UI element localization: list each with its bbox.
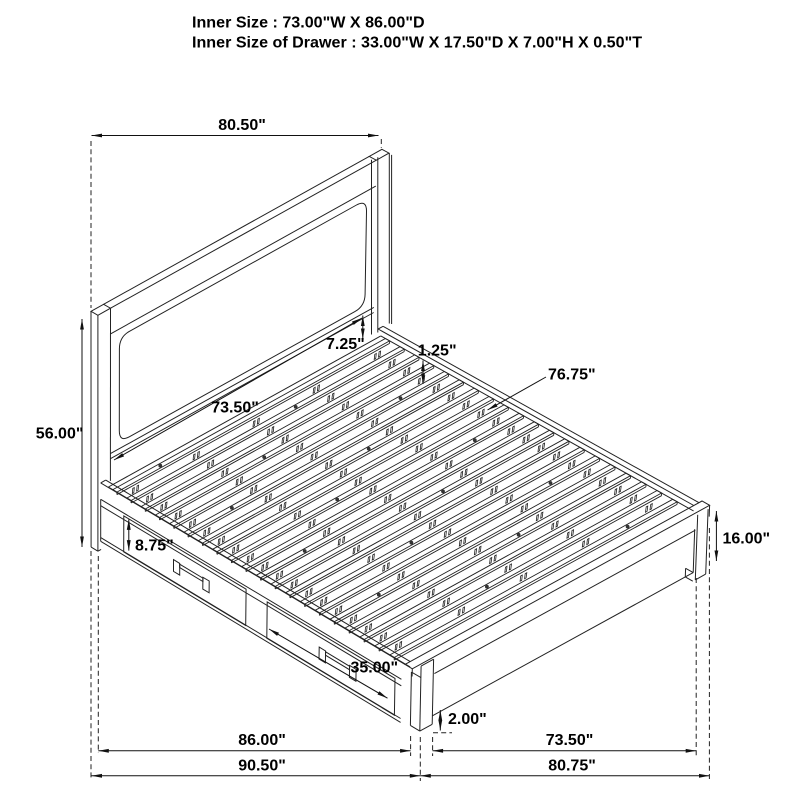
svg-text:73.50": 73.50" [546, 732, 594, 749]
svg-text:8.75": 8.75" [135, 538, 174, 555]
svg-text:2.00": 2.00" [448, 711, 487, 728]
svg-text:80.75": 80.75" [548, 758, 596, 775]
svg-text:7.25": 7.25" [326, 336, 365, 353]
svg-text:Inner Size : 73.00"W X 86.00"D: Inner Size : 73.00"W X 86.00"D [192, 14, 425, 32]
svg-text:56.00": 56.00" [36, 426, 84, 443]
svg-text:73.50": 73.50" [211, 400, 259, 417]
svg-text:76.75": 76.75" [548, 366, 596, 383]
svg-text:90.50": 90.50" [238, 758, 286, 775]
svg-text:Inner Size of Drawer : 33.00"W: Inner Size of Drawer : 33.00"W X 17.50"D… [192, 34, 642, 52]
svg-text:16.00": 16.00" [723, 531, 771, 548]
svg-text:1.25": 1.25" [418, 343, 457, 360]
svg-text:80.50": 80.50" [218, 117, 266, 134]
svg-text:86.00": 86.00" [238, 732, 286, 749]
svg-text:35.00": 35.00" [351, 660, 399, 677]
